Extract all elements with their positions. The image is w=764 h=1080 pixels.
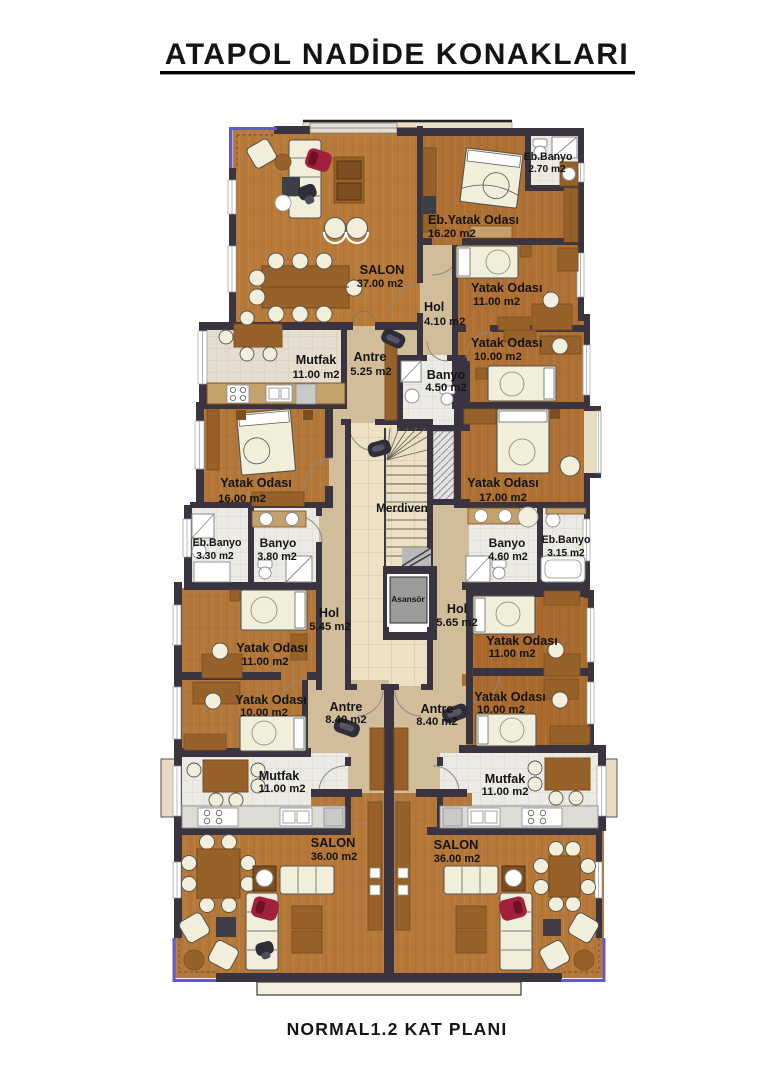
svg-text:11.00 m2: 11.00 m2 (473, 296, 520, 308)
svg-text:11.00 m2: 11.00 m2 (241, 656, 288, 668)
svg-text:Banyo: Banyo (427, 368, 466, 382)
svg-text:16.20 m2: 16.20 m2 (428, 228, 476, 240)
svg-text:Yatak Odası: Yatak Odası (235, 693, 306, 707)
svg-text:16.00 m2: 16.00 m2 (218, 493, 266, 505)
svg-text:Hol: Hol (319, 606, 339, 620)
svg-text:Yatak Odası: Yatak Odası (486, 634, 557, 648)
svg-text:Yatak Odası: Yatak Odası (474, 690, 545, 704)
svg-text:37.00 m2: 37.00 m2 (357, 278, 403, 290)
svg-text:2.70 m2: 2.70 m2 (528, 164, 566, 175)
svg-text:36.00 m2: 36.00 m2 (311, 851, 357, 863)
svg-text:SALON: SALON (434, 837, 479, 852)
svg-text:Eb.Banyo: Eb.Banyo (524, 151, 573, 163)
svg-text:10.00 m2: 10.00 m2 (240, 707, 288, 719)
svg-text:10.00 m2: 10.00 m2 (477, 704, 525, 716)
svg-text:Antre: Antre (421, 702, 454, 716)
svg-text:8.40 m2: 8.40 m2 (325, 714, 366, 726)
svg-text:Yatak Odası: Yatak Odası (236, 641, 307, 655)
svg-text:Asansör: Asansör (391, 594, 425, 604)
svg-text:3.15 m2: 3.15 m2 (547, 548, 585, 559)
svg-text:ATAPOL NADİDE KONAKLARI: ATAPOL NADİDE KONAKLARI (165, 38, 630, 71)
svg-text:Hol: Hol (447, 602, 467, 616)
svg-text:SALON: SALON (311, 835, 356, 850)
svg-text:Yatak Odası: Yatak Odası (471, 336, 542, 350)
svg-text:Eb.Yatak Odası: Eb.Yatak Odası (428, 213, 519, 227)
svg-text:11.00 m2: 11.00 m2 (292, 369, 339, 381)
svg-text:4.50 m2: 4.50 m2 (425, 382, 466, 394)
svg-text:5.25 m2: 5.25 m2 (350, 366, 391, 378)
svg-text:11.00 m2: 11.00 m2 (481, 786, 528, 798)
svg-text:11.00 m2: 11.00 m2 (488, 648, 535, 660)
svg-text:Banyo: Banyo (489, 536, 526, 550)
svg-text:Eb.Banyo: Eb.Banyo (542, 534, 591, 546)
svg-text:Yatak Odası: Yatak Odası (220, 476, 291, 490)
svg-text:Merdiven: Merdiven (376, 501, 428, 515)
svg-text:Antre: Antre (354, 350, 387, 364)
svg-text:Mutfak: Mutfak (485, 772, 527, 786)
svg-text:Banyo: Banyo (260, 536, 297, 550)
svg-text:8.40 m2: 8.40 m2 (416, 716, 457, 728)
svg-text:Hol: Hol (424, 300, 444, 314)
svg-text:5.45 m2: 5.45 m2 (309, 621, 350, 633)
svg-text:Yatak Odası: Yatak Odası (471, 281, 542, 295)
svg-text:SALON: SALON (360, 262, 405, 277)
svg-text:Eb.Banyo: Eb.Banyo (193, 537, 242, 549)
svg-text:Mutfak: Mutfak (296, 353, 338, 367)
svg-text:36.00 m2: 36.00 m2 (434, 853, 480, 865)
svg-text:10.00 m2: 10.00 m2 (474, 351, 522, 363)
svg-text:3.30 m2: 3.30 m2 (196, 551, 234, 562)
svg-text:Mutfak: Mutfak (259, 769, 301, 783)
svg-text:Antre: Antre (330, 700, 363, 714)
svg-text:Yatak Odası: Yatak Odası (467, 476, 538, 490)
svg-text:NORMAL1.2 KAT PLANI: NORMAL1.2 KAT PLANI (287, 1019, 508, 1039)
svg-text:4.60 m2: 4.60 m2 (488, 551, 528, 563)
svg-text:11.00 m2: 11.00 m2 (258, 783, 305, 795)
svg-text:5.65 m2: 5.65 m2 (436, 617, 477, 629)
svg-text:4.10 m2: 4.10 m2 (424, 316, 465, 328)
svg-text:17.00 m2: 17.00 m2 (479, 492, 527, 504)
svg-text:3.80 m2: 3.80 m2 (257, 551, 297, 563)
